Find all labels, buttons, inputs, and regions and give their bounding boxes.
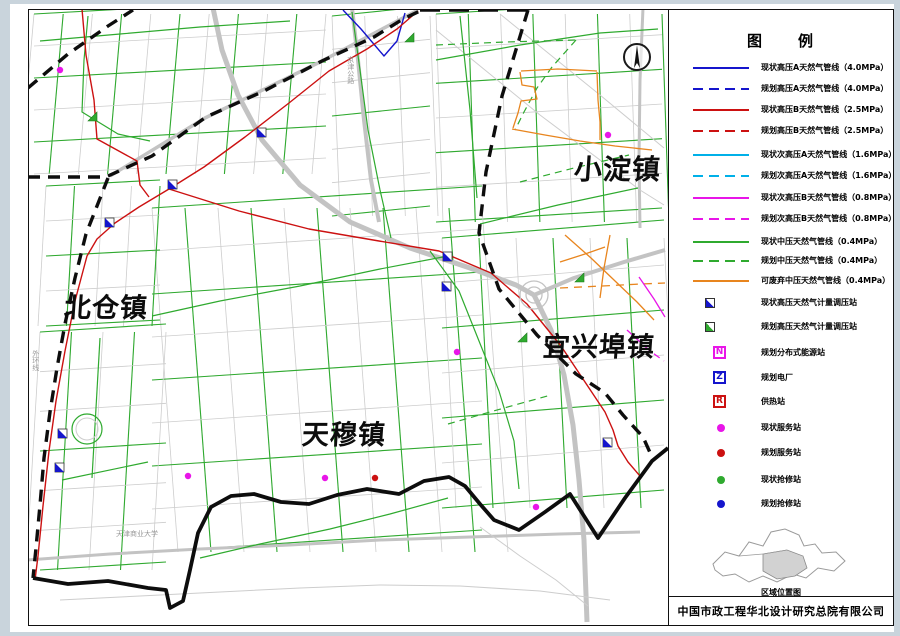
- road-line: [29, 14, 34, 174]
- road-line: [46, 215, 160, 221]
- legend-label: 现状次高压B天然气管线（0.8MPa）: [761, 193, 896, 203]
- road-line: [442, 445, 664, 463]
- map-canvas: 北仓镇天穆镇小淀镇宜兴埠镇外环线京津公路天津商业大学: [29, 10, 668, 625]
- legend-sample-line: [693, 67, 749, 69]
- legend-sample-flag: [705, 322, 715, 332]
- legend-sample-line: [693, 241, 749, 243]
- legend-sample-line: [693, 218, 749, 220]
- pipeline-line: [442, 400, 664, 418]
- legend-label: 现状高压B天然气管线（2.5MPa）: [761, 105, 888, 115]
- pipeline-line: [58, 332, 72, 570]
- legend-label: 现状次高压A天然气管线（1.6MPa）: [761, 150, 896, 160]
- legend-sample-box: Z: [713, 371, 726, 384]
- road-line: [152, 229, 482, 251]
- pipeline-mid-green: [62, 462, 148, 480]
- legend-sample-dot: [717, 500, 725, 508]
- pipeline-abandon-orange: [513, 72, 537, 128]
- legend-label: 可废弃中压天然气管线（0.4MPa）: [761, 276, 890, 286]
- road-line: [152, 332, 166, 570]
- pipeline-mid-green: [40, 21, 290, 41]
- legend-sample-line: [693, 88, 749, 90]
- road-line: [40, 403, 166, 411]
- road-line: [152, 315, 482, 337]
- legend-label: 现状高压A天然气管线（4.0MPa）: [761, 63, 888, 73]
- pipeline-line: [479, 238, 493, 508]
- road-line: [40, 364, 166, 372]
- pipeline-line: [468, 14, 475, 222]
- legend-label: 规划次高压A天然气管线（1.6MPa）: [761, 171, 896, 181]
- legend-sample-line: [693, 175, 749, 177]
- service-station-dot-magenta: [533, 504, 539, 510]
- legend-label: 现状高压天然气计量调压站: [761, 298, 857, 308]
- boundary-solid: [33, 448, 668, 608]
- pipeline-line: [597, 14, 604, 222]
- service-station-dot-red: [372, 475, 378, 481]
- road-south: [480, 527, 588, 606]
- service-station-dot-magenta: [322, 475, 328, 481]
- road-line: [284, 208, 310, 552]
- legend-sample-line: [693, 280, 749, 282]
- pipeline-line: [332, 206, 430, 216]
- pipeline-abandon-orange: [560, 247, 605, 262]
- legend-sample-line: [693, 154, 749, 156]
- pipeline-line: [40, 443, 166, 451]
- legend-sample-line: [693, 130, 749, 132]
- pipeline-high-red: [169, 189, 640, 476]
- legend-sample-flag: [705, 298, 715, 308]
- pipeline-line: [34, 62, 326, 78]
- road-line: [332, 73, 430, 83]
- legend-label: 规划高压天然气计量调压站: [761, 322, 857, 332]
- pipeline-line: [332, 106, 430, 116]
- road-line: [436, 173, 662, 187]
- road-line: [152, 487, 482, 509]
- road-line: [38, 186, 46, 326]
- boundary-line: [29, 10, 133, 88]
- legend-label: 规划高压A天然气管线（4.0MPa）: [761, 84, 888, 94]
- pipeline-line: [46, 250, 160, 256]
- legend-sample-line: [693, 197, 749, 199]
- pipeline-line: [49, 14, 63, 174]
- boundary-line: [33, 178, 108, 578]
- pipeline-line: [627, 238, 641, 508]
- road-line: [40, 522, 166, 530]
- pipeline-line: [436, 10, 662, 14]
- road-line: [565, 14, 572, 222]
- road-line: [442, 355, 664, 373]
- legend-label: 现状服务站: [761, 423, 801, 433]
- legend-sample-dot: [717, 449, 725, 457]
- pipeline-line: [283, 14, 297, 174]
- company-name: 中国市政工程华北设计研究总院有限公司: [678, 603, 885, 619]
- pipeline-line: [34, 10, 326, 14]
- legend-sample-dot: [717, 424, 725, 432]
- wide-road: [639, 10, 643, 228]
- legend-panel: 图 例 现状高压A天然气管线（4.0MPa）规划高压A天然气管线（4.0MPa）…: [668, 9, 894, 597]
- legend-label: 规划抢修站: [761, 499, 801, 509]
- road-line: [590, 238, 604, 508]
- pipeline-orange-dashed: [560, 283, 665, 288]
- legend-sample-box: R: [713, 395, 726, 408]
- wide-road: [29, 532, 640, 560]
- pipeline-line: [152, 186, 160, 326]
- road-line: [137, 14, 151, 174]
- pipeline-line: [152, 358, 482, 380]
- pipeline-line: [152, 444, 482, 466]
- pipeline-line: [436, 208, 662, 222]
- legend-label: 现状中压天然气管线（0.4MPa）: [761, 237, 882, 247]
- boundary-line: [108, 11, 420, 176]
- legend-sample-line: [693, 109, 749, 111]
- pipeline-line: [436, 139, 662, 153]
- road-line: [332, 139, 430, 149]
- legend-label: 规划服务站: [761, 448, 801, 458]
- legend-sample-line: [693, 260, 749, 262]
- company-bar: 中国市政工程华北设计研究总院有限公司: [668, 596, 894, 626]
- road-line: [350, 208, 376, 552]
- road-line: [501, 14, 508, 222]
- map-document-page: 北仓镇天穆镇小淀镇宜兴埠镇外环线京津公路天津商业大学 图 例 现状高压A天然气管…: [0, 0, 900, 636]
- pipeline-mid-green: [200, 498, 448, 558]
- road-line: [195, 14, 209, 174]
- pipeline-mid-green: [480, 188, 638, 224]
- station-flag-green: [518, 333, 527, 342]
- pipeline-mid-green: [152, 256, 448, 316]
- legend-label: 规划高压B天然气管线（2.5MPa）: [761, 126, 888, 136]
- legend-label: 供热站: [761, 397, 785, 407]
- legend-label: 规划电厂: [761, 373, 793, 383]
- service-station-dot-magenta: [57, 67, 63, 73]
- service-station-dot-magenta: [454, 349, 460, 355]
- pipeline-line: [67, 186, 75, 326]
- legend-sample-box: N: [713, 346, 726, 359]
- legend-label: 规划中压天然气管线（0.4MPa）: [761, 256, 882, 266]
- station-flag-green: [405, 33, 414, 42]
- pipeline-line: [121, 332, 135, 570]
- pipeline-abandon-orange: [521, 69, 597, 71]
- road-line: [152, 401, 482, 423]
- wide-road: [534, 295, 587, 622]
- road-line: [124, 186, 132, 326]
- pipeline-line: [40, 562, 166, 570]
- service-station-dot-magenta: [185, 473, 191, 479]
- pipeline-line: [383, 208, 409, 552]
- legend-label: 规划次高压B天然气管线（0.8MPa）: [761, 214, 896, 224]
- pipeline-line: [46, 180, 160, 186]
- map-graphics: [29, 10, 668, 625]
- road-line: [332, 173, 430, 183]
- pipeline-line: [185, 208, 211, 552]
- legend-sample-dot: [717, 476, 725, 484]
- pipeline-line: [442, 220, 664, 238]
- pipeline-planned-green: [520, 155, 629, 182]
- legend-label: 规划分布式能源站: [761, 348, 825, 358]
- inset-map: [705, 526, 857, 586]
- road-line: [46, 285, 160, 291]
- legend-label: 现状抢修站: [761, 475, 801, 485]
- legend-title: 图 例: [669, 30, 893, 51]
- road-line: [397, 16, 405, 216]
- pipeline-line: [108, 14, 122, 174]
- pipeline-line: [449, 208, 475, 552]
- road-line: [40, 483, 166, 491]
- road-line: [516, 238, 530, 508]
- service-station-dot-magenta: [605, 132, 611, 138]
